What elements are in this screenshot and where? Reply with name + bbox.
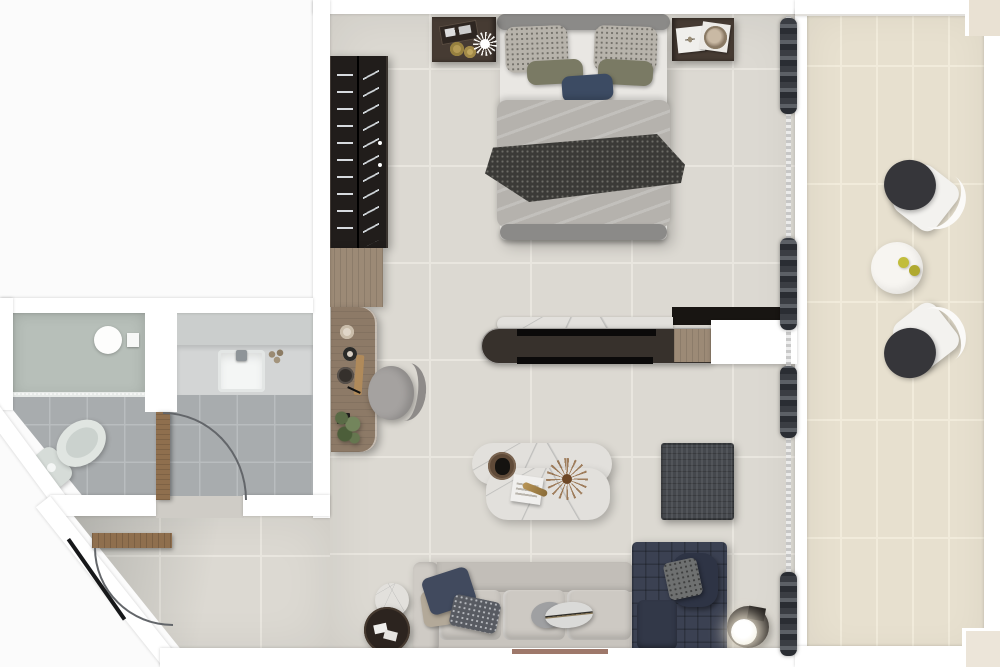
wall-bathroom-top	[0, 298, 313, 313]
table-small-tray	[747, 606, 766, 622]
shower-area	[13, 313, 145, 397]
spiky-ornament-core	[480, 39, 490, 49]
dried-plant-center	[562, 474, 572, 484]
rain-shower-head	[94, 326, 122, 354]
sink-faucet	[236, 350, 247, 361]
wardrobe-door-left-hangers	[335, 60, 355, 244]
floor-rug-pouf	[661, 443, 734, 520]
console-strip-bottom	[517, 357, 653, 364]
double-bed	[497, 14, 670, 240]
tray-sculpture	[495, 458, 510, 475]
navy-accent-pillow	[561, 73, 614, 102]
vanity-flowers	[266, 348, 286, 364]
wardrobe-handle-top	[378, 141, 382, 145]
coffee-cup-1	[340, 325, 354, 339]
drape-bunch-mid-upper	[780, 238, 797, 330]
neighbor-block-top-right	[965, 0, 1000, 36]
wall-bathroom-mid-column	[145, 313, 177, 412]
drape-bunch-bottom	[780, 572, 797, 656]
drape-bunch-top	[780, 18, 797, 114]
wardrobe	[328, 56, 388, 248]
entry-door-swing-arc	[94, 548, 173, 626]
book-illustration	[684, 33, 695, 47]
lemon-2	[909, 265, 920, 276]
nightstand-right	[672, 18, 734, 61]
shower-glass-panel	[13, 392, 145, 397]
wardrobe-center-seam	[357, 56, 359, 248]
wardrobe-lower-cabinet	[328, 248, 383, 307]
wall-balcony-right	[984, 0, 1000, 667]
gold-coaster-1	[450, 42, 464, 56]
wall-bathroom-bottom-left	[50, 495, 156, 516]
coffee-cup-2	[343, 347, 357, 361]
drape-bunch-mid-lower	[780, 366, 797, 438]
coffee-table	[472, 440, 612, 522]
wall-bathroom-left	[0, 298, 13, 410]
bathroom-wall-upper	[177, 313, 313, 346]
console-wood-cabinet	[674, 329, 712, 362]
side-table-dark	[364, 607, 410, 653]
sphere-lamp	[731, 619, 757, 645]
desk-chair	[366, 360, 418, 424]
wardrobe-door-right-hangers	[361, 56, 381, 248]
nightstand-left	[432, 17, 496, 62]
floor-plan-canvas	[0, 0, 1000, 667]
wall-balcony-top	[795, 0, 969, 16]
wall-top-main	[313, 0, 805, 14]
side-table-card-2	[383, 630, 398, 642]
chaise-seat-cushion	[637, 600, 677, 650]
footboard	[500, 224, 667, 240]
media-console	[481, 328, 712, 364]
wall-left-main	[313, 0, 330, 518]
desk-plant	[332, 406, 364, 446]
wardrobe-handle-bottom	[378, 163, 382, 167]
console-strip-top	[517, 329, 656, 336]
lemon-1	[898, 257, 909, 268]
chaise-lounge	[632, 542, 727, 656]
wall-bathroom-bottom-right	[243, 495, 330, 516]
round-mirror-tray	[704, 26, 727, 49]
wall-bottom-main	[160, 648, 805, 667]
doormat-strip	[512, 649, 608, 654]
outdoor-chair-top	[884, 160, 962, 244]
outdoor-chair-bottom	[884, 292, 962, 376]
desk-plate	[337, 367, 354, 384]
neighbor-block-bottom-right	[962, 628, 1000, 667]
shower-control-plate	[127, 333, 139, 347]
entry-door	[92, 533, 172, 548]
sofa	[413, 562, 633, 654]
